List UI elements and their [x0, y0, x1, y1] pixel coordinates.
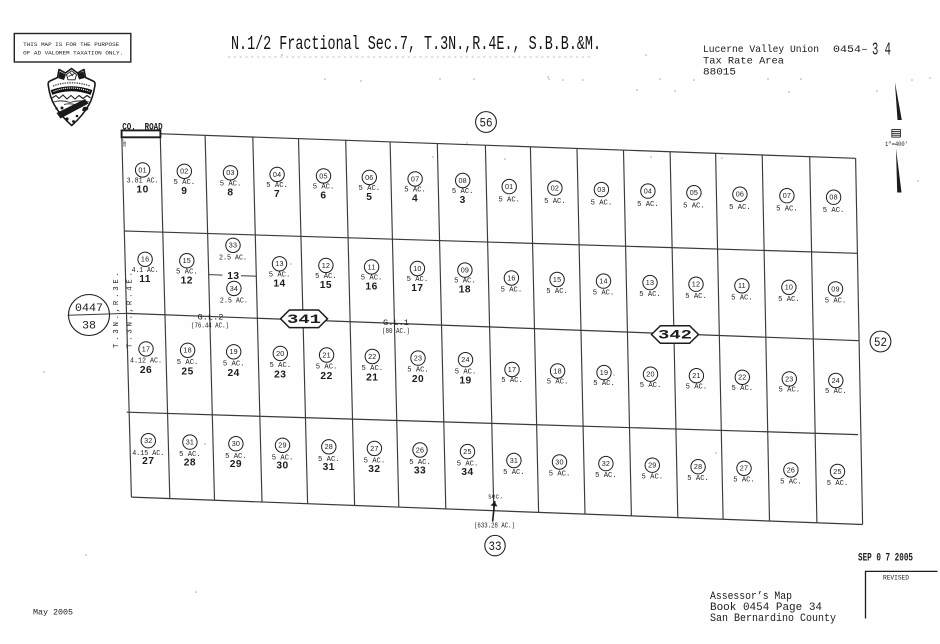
svg-text:5 AC.: 5 AC. — [780, 478, 802, 486]
svg-text:5 AC.: 5 AC. — [544, 198, 566, 206]
svg-text:San Bernardino County: San Bernardino County — [710, 613, 836, 625]
svg-text:1”=400’: 1”=400’ — [885, 141, 908, 148]
svg-text:CO. ROAD: CO. ROAD — [122, 121, 163, 133]
svg-text:20: 20 — [646, 370, 654, 379]
svg-text:05: 05 — [690, 188, 698, 197]
svg-text:04: 04 — [644, 187, 652, 196]
svg-text:(80 AC.): (80 AC.) — [382, 328, 410, 336]
svg-text:18: 18 — [553, 366, 561, 375]
svg-text:5 AC.: 5 AC. — [776, 206, 798, 214]
svg-text:12: 12 — [692, 280, 700, 289]
svg-text:10: 10 — [413, 264, 421, 273]
svg-text:0454–: 0454– — [833, 44, 868, 56]
svg-text:20: 20 — [276, 349, 284, 358]
svg-text:24: 24 — [832, 376, 840, 385]
svg-text:13: 13 — [227, 271, 239, 282]
svg-text:22: 22 — [320, 371, 332, 382]
svg-text:5 AC.: 5 AC. — [732, 385, 754, 393]
svg-text:10: 10 — [785, 283, 793, 292]
svg-text:04: 04 — [273, 170, 281, 179]
svg-text:30’: 30’ — [122, 139, 128, 147]
svg-text:05: 05 — [319, 171, 327, 180]
svg-text:sec.: sec. — [488, 494, 503, 502]
svg-text:5 AC.: 5 AC. — [825, 388, 847, 396]
svg-text:31: 31 — [510, 456, 518, 465]
svg-text:29: 29 — [278, 441, 286, 450]
svg-text:20: 20 — [412, 374, 424, 385]
svg-text:5 AC.: 5 AC. — [640, 382, 662, 390]
svg-text:5 AC.: 5 AC. — [687, 475, 709, 483]
svg-text:30: 30 — [276, 461, 288, 472]
svg-text:4: 4 — [412, 193, 418, 204]
svg-text:8: 8 — [227, 187, 233, 198]
svg-text:OF AD VALOREM TAXATION ONLY.: OF AD VALOREM TAXATION ONLY. — [23, 50, 123, 57]
svg-text:5 AC.: 5 AC. — [683, 203, 705, 211]
svg-text:17: 17 — [142, 344, 150, 353]
svg-text:5 AC.: 5 AC. — [685, 293, 707, 301]
svg-text:03: 03 — [597, 185, 605, 194]
svg-text:56: 56 — [480, 116, 493, 130]
svg-text:02: 02 — [180, 167, 188, 176]
svg-text:5 AC.: 5 AC. — [825, 298, 847, 306]
svg-text:33: 33 — [229, 241, 237, 250]
svg-text:0447: 0447 — [75, 303, 103, 315]
svg-text:01: 01 — [138, 165, 146, 174]
svg-text:28: 28 — [184, 458, 196, 469]
svg-text:08: 08 — [458, 176, 466, 185]
svg-text:27: 27 — [370, 444, 378, 453]
svg-text:19: 19 — [600, 368, 608, 377]
svg-text:2.5 AC.: 2.5 AC. — [219, 254, 247, 262]
svg-text:29: 29 — [648, 461, 656, 470]
svg-text:23: 23 — [414, 354, 422, 363]
svg-text:5 AC.: 5 AC. — [827, 480, 849, 488]
svg-text:26: 26 — [787, 465, 795, 474]
svg-text:14: 14 — [273, 278, 285, 289]
svg-text:31: 31 — [323, 462, 335, 473]
svg-text:07: 07 — [783, 191, 791, 200]
svg-text:5 AC.: 5 AC. — [498, 197, 520, 205]
svg-text:6: 6 — [320, 190, 326, 201]
svg-text:18: 18 — [459, 285, 471, 296]
svg-text:G.L.2: G.L.2 — [198, 313, 224, 322]
svg-text:N.1/2 Fractional Sec.7, T.3N.,: N.1/2 Fractional Sec.7, T.3N.,R.4E., S.B… — [231, 33, 601, 55]
svg-text:T.3N.,R.3E.: T.3N.,R.3E. — [113, 272, 121, 348]
svg-text:7: 7 — [274, 189, 280, 200]
svg-text:(633.28 AC.): (633.28 AC.) — [474, 523, 515, 531]
svg-text:38: 38 — [82, 321, 96, 333]
svg-text:2.5 AC.: 2.5 AC. — [220, 297, 248, 305]
svg-text:32: 32 — [602, 459, 610, 468]
svg-text:G.L.1: G.L.1 — [383, 319, 409, 328]
svg-text:02: 02 — [551, 184, 559, 193]
svg-text:07: 07 — [411, 174, 419, 183]
svg-text:18: 18 — [183, 346, 191, 355]
svg-text:09: 09 — [461, 266, 469, 275]
svg-text:5 AC.: 5 AC. — [639, 291, 661, 299]
svg-text:5 AC.: 5 AC. — [546, 288, 568, 296]
svg-text:03: 03 — [226, 168, 234, 177]
svg-text:11: 11 — [368, 262, 376, 271]
svg-text:28: 28 — [325, 442, 333, 451]
svg-text:30: 30 — [555, 457, 563, 466]
svg-text:08: 08 — [829, 193, 837, 202]
svg-text:5 AC.: 5 AC. — [779, 387, 801, 395]
svg-text:25: 25 — [833, 467, 841, 476]
svg-text:12: 12 — [322, 261, 330, 270]
svg-text:25: 25 — [181, 366, 193, 377]
svg-text:15: 15 — [320, 280, 332, 291]
svg-text:9: 9 — [181, 186, 187, 197]
svg-text:19: 19 — [229, 347, 237, 356]
svg-text:22: 22 — [738, 373, 746, 382]
svg-text:5 AC.: 5 AC. — [549, 470, 571, 478]
svg-text:28: 28 — [694, 462, 702, 471]
svg-text:33: 33 — [489, 540, 502, 554]
svg-text:06: 06 — [365, 173, 373, 182]
svg-text:33: 33 — [414, 465, 426, 476]
svg-text:5: 5 — [366, 192, 372, 203]
svg-text:5 AC.: 5 AC. — [731, 294, 753, 302]
svg-text:34: 34 — [230, 284, 238, 293]
svg-text:11: 11 — [139, 274, 151, 285]
svg-text:342: 342 — [658, 329, 692, 343]
svg-text:SEP 0 7 2005: SEP 0 7 2005 — [858, 553, 913, 565]
svg-text:25: 25 — [463, 447, 471, 456]
svg-text:5 AC.: 5 AC. — [501, 287, 523, 295]
svg-text:31: 31 — [186, 438, 194, 447]
svg-text:5 AC.: 5 AC. — [823, 207, 845, 215]
svg-text:5 AC.: 5 AC. — [595, 472, 617, 480]
svg-text:3 4: 3 4 — [872, 41, 891, 61]
svg-text:32: 32 — [368, 464, 380, 475]
svg-text:34: 34 — [461, 467, 473, 478]
svg-text:15: 15 — [553, 275, 561, 284]
svg-text:15: 15 — [183, 256, 191, 265]
svg-text:09: 09 — [831, 284, 839, 293]
svg-text:5 AC.: 5 AC. — [733, 477, 755, 485]
svg-text:14: 14 — [599, 277, 607, 286]
svg-text:T.3N.,R.4E.: T.3N.,R.4E. — [127, 272, 135, 348]
svg-text:24: 24 — [228, 368, 240, 379]
svg-text:52: 52 — [874, 336, 887, 350]
svg-text:5 AC.: 5 AC. — [778, 296, 800, 304]
svg-text:17: 17 — [411, 283, 423, 294]
svg-text:341: 341 — [287, 313, 321, 327]
svg-text:13: 13 — [275, 259, 283, 268]
svg-text:5 AC.: 5 AC. — [642, 474, 664, 482]
svg-text:29: 29 — [230, 459, 242, 470]
svg-text:13: 13 — [646, 278, 654, 287]
svg-text:3: 3 — [460, 195, 466, 206]
svg-text:24: 24 — [461, 355, 469, 364]
svg-text:26: 26 — [140, 365, 152, 376]
svg-text:Lucerne Valley Union: Lucerne Valley Union — [703, 44, 819, 56]
svg-text:12: 12 — [181, 275, 193, 286]
svg-text:06: 06 — [736, 190, 744, 199]
svg-text:5 AC.: 5 AC. — [593, 380, 615, 388]
svg-text:27: 27 — [740, 464, 748, 473]
svg-text:30: 30 — [232, 439, 240, 448]
svg-text:5 AC.: 5 AC. — [637, 201, 659, 209]
svg-text:88015: 88015 — [703, 67, 736, 79]
svg-text:21: 21 — [322, 350, 330, 359]
svg-text:5 AC.: 5 AC. — [547, 379, 569, 387]
svg-text:REVISED: REVISED — [883, 575, 909, 582]
svg-text:May 2005: May 2005 — [33, 608, 73, 618]
svg-text:16: 16 — [507, 273, 515, 282]
svg-text:(76.44 AC.): (76.44 AC.) — [191, 323, 229, 331]
svg-text:26: 26 — [416, 445, 424, 454]
svg-text:11: 11 — [738, 281, 746, 290]
svg-text:5 AC.: 5 AC. — [686, 383, 708, 391]
svg-text:27: 27 — [142, 456, 154, 467]
svg-text:5 AC.: 5 AC. — [729, 204, 751, 212]
svg-text:21: 21 — [366, 373, 378, 384]
svg-text:17: 17 — [508, 365, 516, 374]
svg-text:5 AC.: 5 AC. — [591, 200, 613, 208]
svg-text:16: 16 — [365, 282, 377, 293]
svg-text:23: 23 — [785, 374, 793, 383]
svg-text:23: 23 — [274, 369, 286, 380]
svg-text:21: 21 — [692, 371, 700, 380]
svg-text:32: 32 — [144, 436, 152, 445]
svg-text:19: 19 — [459, 376, 471, 387]
svg-text:01: 01 — [505, 182, 513, 191]
svg-text:22: 22 — [368, 352, 376, 361]
svg-text:5 AC.: 5 AC. — [593, 290, 615, 298]
svg-text:5 AC.: 5 AC. — [503, 469, 525, 477]
svg-text:10: 10 — [136, 184, 148, 195]
svg-text:THIS MAP IS FOR THE PURPOSE: THIS MAP IS FOR THE PURPOSE — [23, 41, 120, 48]
svg-text:16: 16 — [141, 255, 149, 264]
svg-text:5 AC.: 5 AC. — [501, 377, 523, 385]
